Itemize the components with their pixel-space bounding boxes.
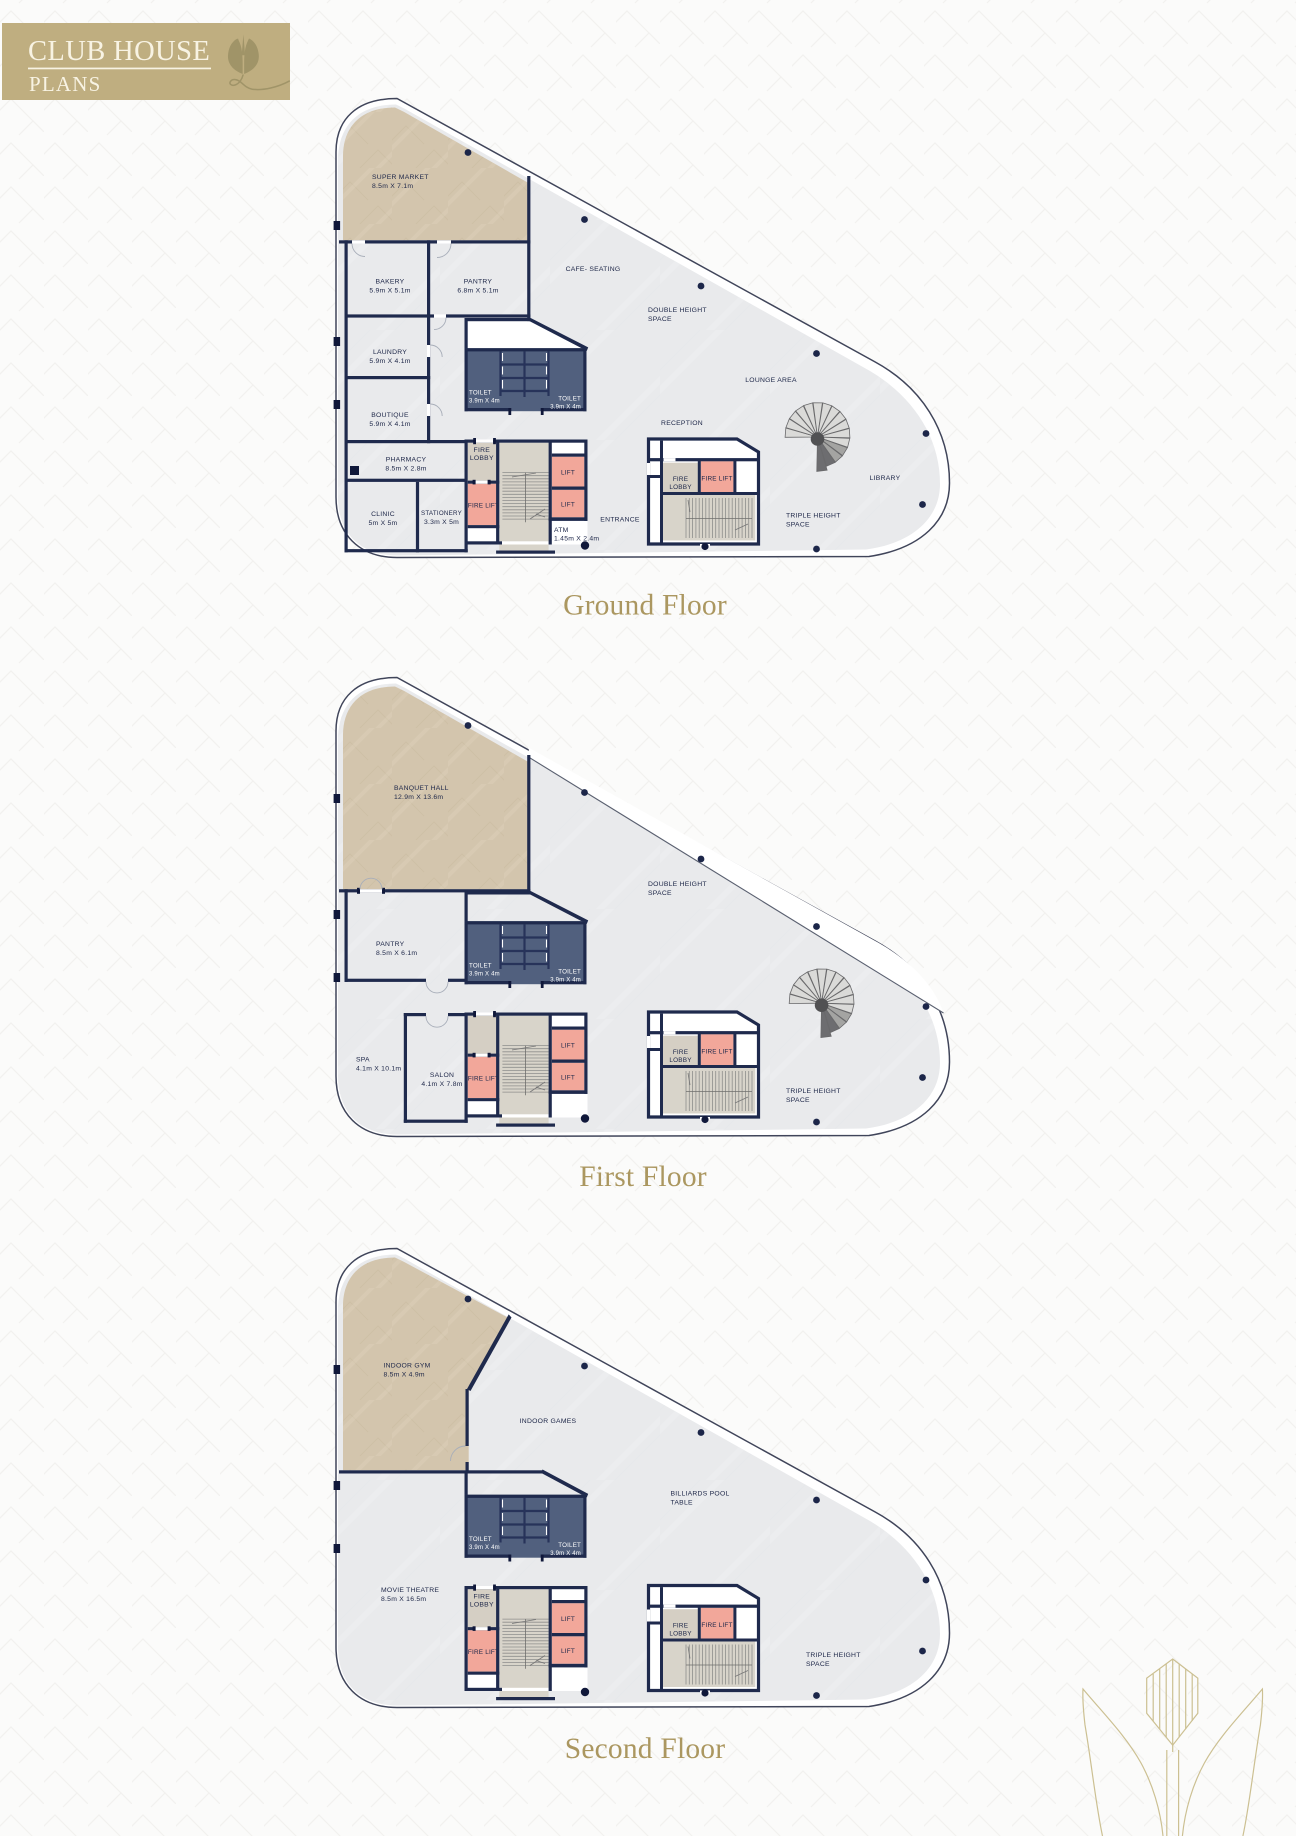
svg-text:SALON: SALON bbox=[430, 1072, 454, 1079]
svg-text:4.1m X 10.1m: 4.1m X 10.1m bbox=[356, 1066, 401, 1073]
svg-text:SPACE: SPACE bbox=[806, 1661, 830, 1668]
svg-text:CLINIC: CLINIC bbox=[371, 511, 395, 518]
svg-text:SPACE: SPACE bbox=[786, 1097, 810, 1104]
svg-text:SPACE: SPACE bbox=[648, 890, 672, 897]
svg-text:8.5m X 6.1m: 8.5m X 6.1m bbox=[376, 950, 417, 957]
svg-text:ATM: ATM bbox=[554, 527, 569, 534]
svg-text:FIRE: FIRE bbox=[474, 1594, 491, 1601]
svg-text:LAUNDRY: LAUNDRY bbox=[373, 349, 407, 356]
svg-text:6.8m X 5.1m: 6.8m X 5.1m bbox=[457, 288, 498, 295]
svg-text:DOUBLE HEIGHT: DOUBLE HEIGHT bbox=[648, 881, 707, 888]
svg-text:PANTRY: PANTRY bbox=[464, 279, 493, 286]
svg-text:TRIPLE HEIGHT: TRIPLE HEIGHT bbox=[786, 513, 841, 520]
svg-text:1.45m X 2.4m: 1.45m X 2.4m bbox=[554, 536, 599, 543]
svg-text:TABLE: TABLE bbox=[671, 1500, 693, 1507]
svg-text:SPACE: SPACE bbox=[648, 316, 672, 323]
svg-text:MOVIE THEATRE: MOVIE THEATRE bbox=[381, 1587, 439, 1594]
svg-text:INDOOR GYM: INDOOR GYM bbox=[384, 1363, 431, 1370]
svg-text:INDOOR GAMES: INDOOR GAMES bbox=[520, 1418, 577, 1425]
svg-text:CLUB HOUSE: CLUB HOUSE bbox=[28, 36, 210, 67]
svg-text:TRIPLE HEIGHT: TRIPLE HEIGHT bbox=[806, 1652, 861, 1659]
svg-text:SUPER MARKET: SUPER MARKET bbox=[372, 174, 429, 181]
svg-text:BAKERY: BAKERY bbox=[376, 279, 405, 286]
svg-text:LOBBY: LOBBY bbox=[470, 455, 494, 462]
svg-text:TRIPLE HEIGHT: TRIPLE HEIGHT bbox=[786, 1088, 841, 1095]
svg-text:8.5m X 2.8m: 8.5m X 2.8m bbox=[385, 466, 426, 473]
svg-text:LOBBY: LOBBY bbox=[470, 1602, 494, 1609]
svg-text:PLANS: PLANS bbox=[29, 72, 102, 96]
svg-text:BOUTIQUE: BOUTIQUE bbox=[371, 412, 409, 419]
svg-text:BILLIARDS POOL: BILLIARDS POOL bbox=[671, 1491, 730, 1498]
svg-text:5.9m X 4.1m: 5.9m X 4.1m bbox=[369, 421, 410, 428]
svg-text:RECEPTION: RECEPTION bbox=[661, 420, 703, 427]
svg-text:DOUBLE HEIGHT: DOUBLE HEIGHT bbox=[648, 307, 707, 314]
svg-text:ENTRANCE: ENTRANCE bbox=[600, 517, 640, 524]
svg-text:5m X 5m: 5m X 5m bbox=[369, 520, 398, 527]
svg-text:SPACE: SPACE bbox=[786, 522, 810, 529]
svg-text:4.1m X 7.8m: 4.1m X 7.8m bbox=[421, 1081, 462, 1088]
svg-text:LIBRARY: LIBRARY bbox=[870, 475, 901, 482]
svg-text:Ground Floor: Ground Floor bbox=[563, 590, 727, 622]
svg-text:STATIONERY: STATIONERY bbox=[421, 510, 462, 517]
svg-text:12.9m X 13.6m: 12.9m X 13.6m bbox=[394, 794, 443, 801]
svg-text:3.3m X 5m: 3.3m X 5m bbox=[424, 519, 459, 526]
svg-text:8.5m X 4.9m: 8.5m X 4.9m bbox=[384, 1372, 425, 1379]
svg-text:First Floor: First Floor bbox=[579, 1161, 707, 1193]
svg-text:SPA: SPA bbox=[356, 1057, 370, 1064]
svg-text:FIRE: FIRE bbox=[474, 447, 491, 454]
svg-text:Second Floor: Second Floor bbox=[565, 1733, 726, 1765]
svg-text:CAFE- SEATING: CAFE- SEATING bbox=[566, 266, 621, 273]
svg-text:5.9m X 5.1m: 5.9m X 5.1m bbox=[369, 288, 410, 295]
svg-text:8.5m X 16.5m: 8.5m X 16.5m bbox=[381, 1596, 426, 1603]
svg-text:8.5m X 7.1m: 8.5m X 7.1m bbox=[372, 183, 413, 190]
svg-text:PANTRY: PANTRY bbox=[376, 941, 405, 948]
svg-text:PHARMACY: PHARMACY bbox=[386, 457, 427, 464]
svg-text:LOUNGE AREA: LOUNGE AREA bbox=[745, 377, 797, 384]
svg-text:BANQUET HALL: BANQUET HALL bbox=[394, 785, 449, 792]
svg-text:5.9m X 4.1m: 5.9m X 4.1m bbox=[369, 358, 410, 365]
